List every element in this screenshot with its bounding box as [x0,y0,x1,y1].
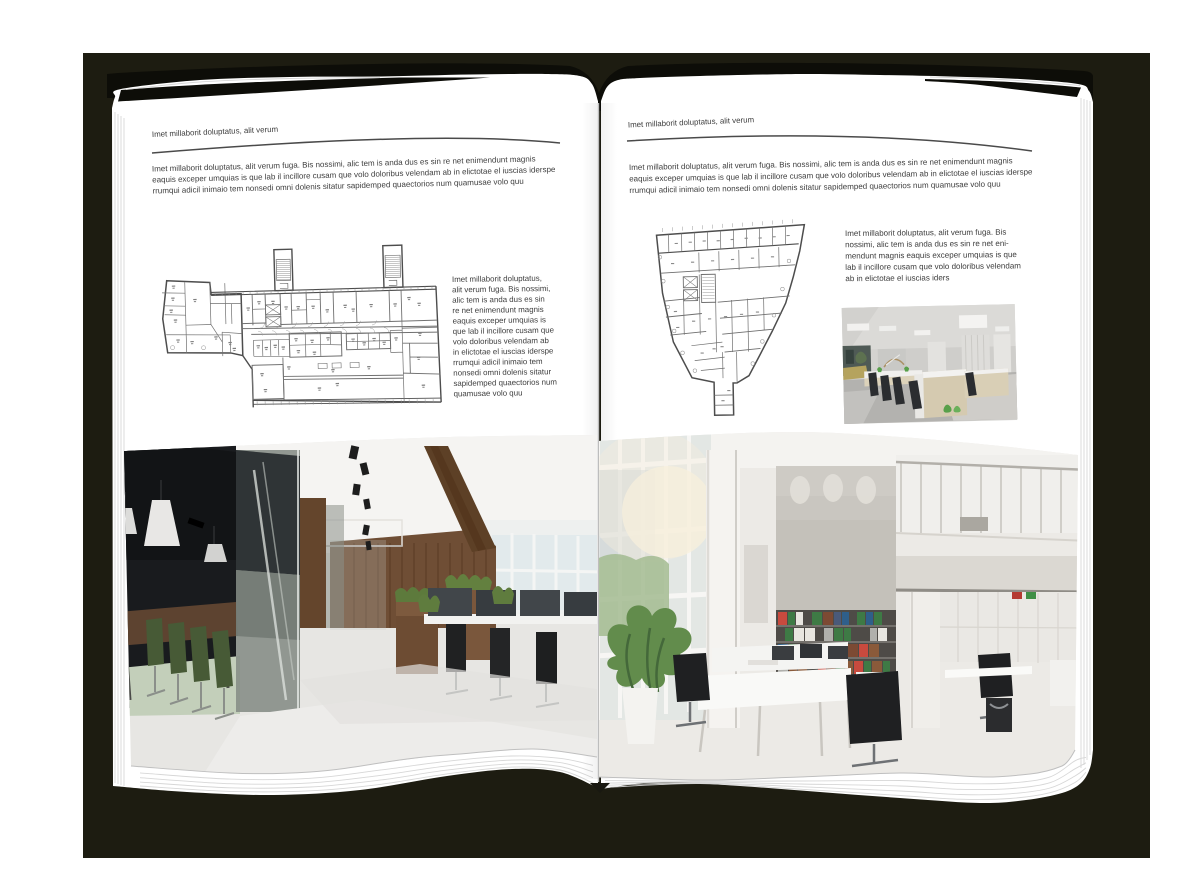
svg-text:in elictotae el iuscias idersp: in elictotae el iuscias iderspe [453,346,554,356]
svg-text:mendunt magnis eaquis exceper: mendunt magnis eaquis exceper umquias is… [845,250,1017,261]
svg-text:nonsedi omni dolenis sitatur: nonsedi omni dolenis sitatur [453,367,551,377]
svg-text:alit verum fuga. Bis nossimi,: alit verum fuga. Bis nossimi, [452,284,550,294]
svg-text:lab il incillore cusam que vol: lab il incillore cusam que volo doloribu… [845,261,1021,272]
svg-text:sapidemped quaectorios num: sapidemped quaectorios num [453,378,557,388]
svg-text:que lab il incillore cusam que: que lab il incillore cusam que [453,326,555,336]
svg-text:re net enimendunt magnis: re net enimendunt magnis [452,305,543,315]
svg-text:volo doloribus velendam ab: volo doloribus velendam ab [453,336,550,346]
svg-text:quamusae volo quu: quamusae volo quu [453,388,522,398]
svg-text:eaquis exceper umquias is: eaquis exceper umquias is [452,315,546,325]
svg-text:rrumqui adicil inimaio tem: rrumqui adicil inimaio tem [453,357,543,367]
svg-text:Imet millaborit doluptatus,: Imet millaborit doluptatus, [452,274,542,284]
svg-text:ab in elictotae el iuscias ide: ab in elictotae el iuscias iders [845,273,949,283]
svg-text:nossimi, alic tem is anda dus: nossimi, alic tem is anda dus es sin re … [845,239,1009,249]
svg-text:alic tem is anda dus es sin: alic tem is anda dus es sin [452,295,545,305]
svg-text:Imet millaborit doluptatus, al: Imet millaborit doluptatus, alit verum f… [845,228,1006,238]
